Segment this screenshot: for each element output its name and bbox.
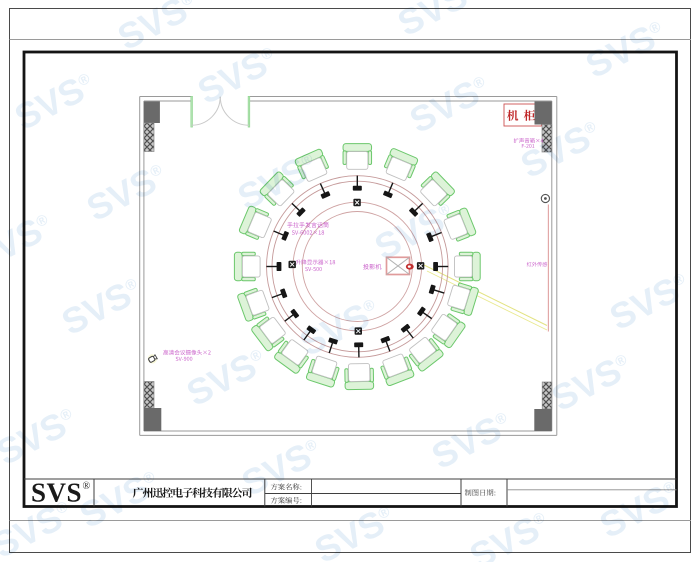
svg-text:SVS®: SVS® [425,403,518,477]
svg-text:SVS®: SVS® [180,340,273,414]
svg-text:SVS®: SVS® [231,144,324,218]
svg-text:SVS®: SVS® [293,290,386,364]
svg-text:SVS®: SVS® [55,269,148,343]
svg-text:SVS®: SVS® [391,0,484,44]
svg-text:SVS®: SVS® [593,472,686,546]
svg-text:SVS®: SVS® [8,64,101,138]
svg-text:SVS®: SVS® [603,264,696,338]
svg-text:SVS®: SVS® [463,503,556,562]
svg-text:SVS®: SVS® [73,462,166,536]
svg-text:SVS®: SVS® [579,12,672,86]
svg-text:SVS®: SVS® [235,430,328,504]
svg-text:SVS®: SVS® [80,155,173,229]
svg-text:SVS®: SVS® [368,194,461,268]
svg-text:SVS®: SVS® [403,67,496,141]
svg-text:SVS®: SVS® [545,345,638,419]
svg-text:SVS®: SVS® [0,399,83,473]
svg-text:SVS®: SVS® [0,205,59,279]
